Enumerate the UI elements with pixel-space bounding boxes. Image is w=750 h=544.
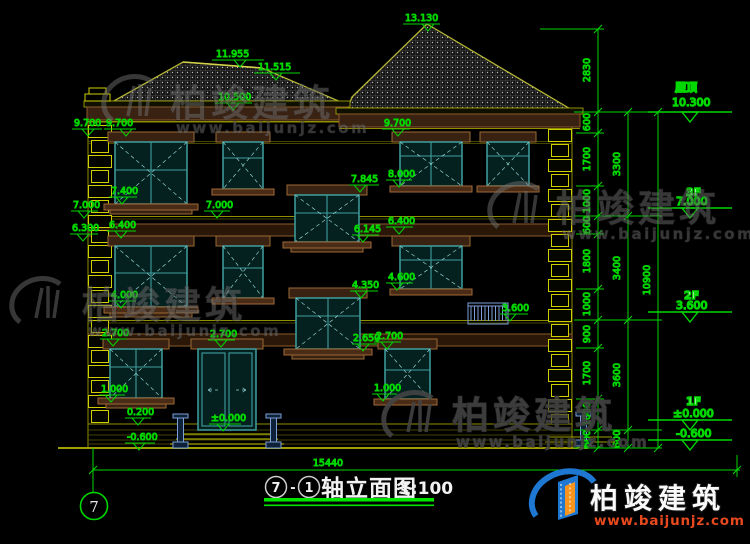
dim-value: 1700 — [582, 361, 593, 385]
level-value: 4.600 — [388, 272, 415, 283]
level-value: 6.400 — [388, 216, 415, 227]
title-underline — [264, 505, 434, 507]
window-1f-left — [98, 339, 174, 408]
watermark-url: www.baijunjz.com — [456, 433, 649, 451]
level-value: -0.600 — [127, 432, 158, 443]
watermark-brand: 柏竣建筑 — [556, 187, 720, 230]
level-value: 9.700 — [384, 118, 411, 129]
level-value: 9.700 — [74, 118, 101, 129]
level-value: 13.130 — [405, 13, 438, 24]
dim-value: 3300 — [612, 152, 623, 176]
floor-label: 屋顶 — [675, 81, 697, 94]
dim-value: 2830 — [582, 58, 593, 82]
floor-elevation: ±0.000 — [673, 407, 714, 420]
level-value: ±0.000 — [211, 413, 246, 424]
window-stair-lower — [284, 288, 372, 359]
dim-value: 600 — [582, 113, 593, 131]
level-value: 7.000 — [206, 200, 233, 211]
floor-elevation: -0.600 — [676, 427, 711, 440]
cad-canvas: 13.130 11.955 11.515 10.500 9.700 9.700 … — [0, 0, 750, 544]
level-value: 7.000 — [73, 200, 100, 211]
window-2f-main — [390, 236, 472, 295]
level-value: 4.350 — [352, 280, 379, 291]
level-value: 6.300 — [72, 223, 99, 234]
quoin-column-left — [88, 124, 112, 424]
title-axis-end: 1 — [304, 481, 313, 496]
level-value: 7.845 — [351, 174, 378, 185]
title-separator: - — [290, 481, 295, 496]
overall-dim-value: 15440 — [313, 458, 343, 469]
level-value: 0.200 — [127, 407, 154, 418]
quoin-column-right — [548, 128, 572, 424]
level-value: 11.515 — [258, 62, 291, 73]
window-stair-upper — [283, 185, 371, 252]
floor-elevation: 3.600 — [676, 299, 708, 312]
level-value: 11.955 — [216, 49, 249, 60]
title-underline — [264, 498, 434, 502]
axis-number: 7 — [89, 498, 99, 516]
level-value: 7.400 — [111, 186, 138, 197]
floor-elevation: 10.300 — [672, 96, 711, 109]
title-scale: 1:100 — [399, 479, 453, 499]
dim-value: 10900 — [642, 265, 653, 295]
level-value: 6.145 — [354, 224, 381, 235]
main-eave — [336, 108, 583, 129]
level-value: 6.400 — [109, 220, 136, 231]
dim-value: 1800 — [582, 249, 593, 273]
level-value: 1.000 — [101, 384, 128, 395]
title-axis-start: 7 — [271, 481, 280, 496]
watermark-brand: 柏竣建筑 — [452, 394, 616, 437]
watermark-url: www.baijunjz.com — [562, 225, 750, 243]
logo-url: www.baijunjz.com — [594, 513, 745, 529]
dim-value: 900 — [582, 325, 593, 343]
logo-brand: 柏竣建筑 — [590, 482, 726, 515]
watermark-url: www.baijunjz.com — [176, 119, 369, 137]
window-3f-left-large — [104, 132, 198, 214]
dim-value: 3400 — [612, 256, 623, 280]
dim-value: 1000 — [582, 292, 593, 316]
dim-value: 1700 — [582, 147, 593, 171]
watermark-url: www.baijunjz.com — [88, 322, 281, 340]
level-value: 3.600 — [502, 303, 529, 314]
level-value: 8.000 — [388, 169, 415, 180]
dim-value: 3600 — [612, 363, 623, 387]
watermark-brand: 柏竣建筑 — [82, 284, 246, 327]
level-value: 2.700 — [376, 331, 403, 342]
level-value: 1.000 — [374, 383, 401, 394]
elevation-drawing: 13.130 11.955 11.515 10.500 9.700 9.700 … — [0, 0, 750, 544]
